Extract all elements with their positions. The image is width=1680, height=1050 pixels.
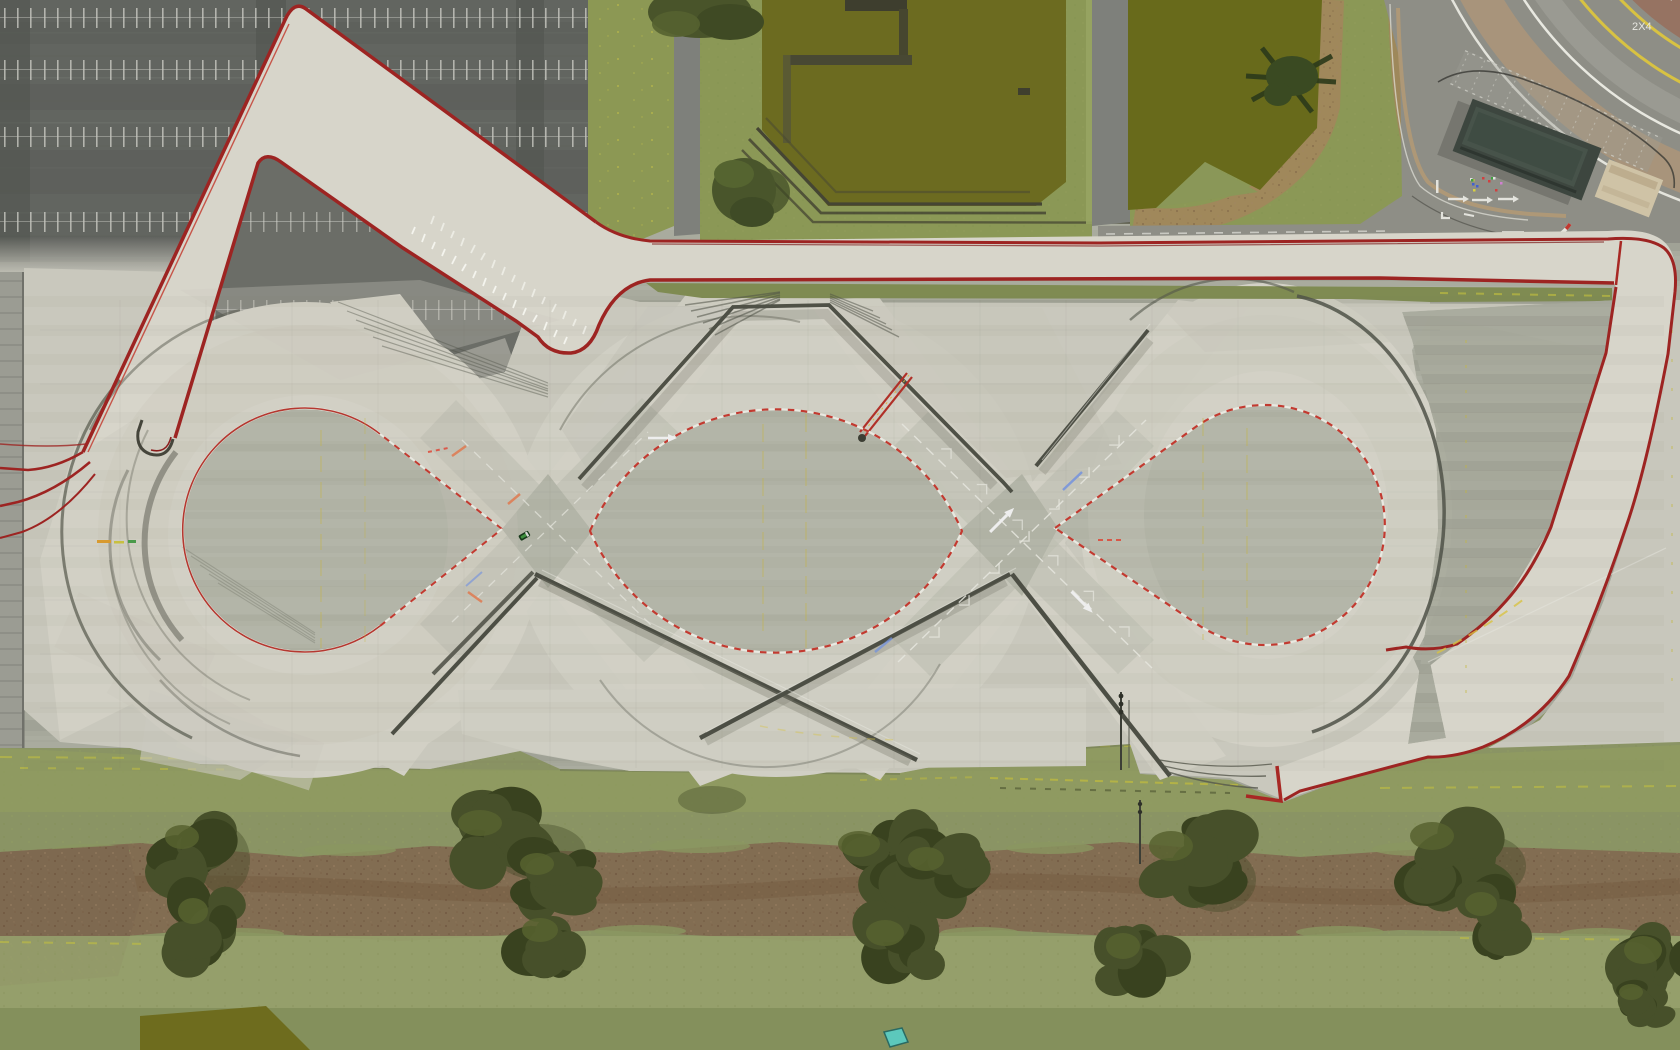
svg-text:2X4: 2X4 — [1632, 21, 1652, 33]
